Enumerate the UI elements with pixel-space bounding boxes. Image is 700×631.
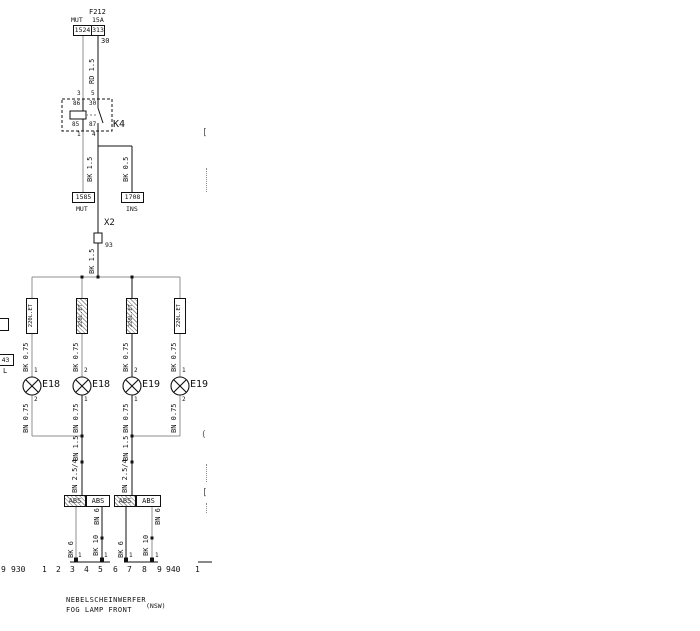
relay-pin-87: 87: [89, 122, 96, 128]
lamp3-pin-bottom: 1: [134, 397, 138, 403]
x2-connector-icon: [94, 233, 102, 243]
wire-label-bk6-right: BK 6: [118, 528, 125, 558]
inline-connector-3: 220L.ET: [126, 298, 138, 334]
track-cell-5: 4: [84, 566, 89, 574]
terminal-bars: [70, 558, 212, 562]
track-cell-6: 5: [98, 566, 103, 574]
inline-connector-1: 220L.ET: [26, 298, 38, 334]
edge-partial-text: L: [3, 368, 7, 375]
relay-id: K4: [113, 120, 125, 130]
lamp-icon-e19-right: [171, 377, 189, 395]
inline-connector-4: 220L.ET: [174, 298, 186, 334]
track-cell-4: 3: [70, 566, 75, 574]
lamp3-id: E19: [142, 380, 160, 390]
ground-pin-1d: 1: [155, 553, 159, 559]
relay-pin-ext-1: 1: [77, 132, 81, 138]
relay-pin-ext-3: 3: [77, 91, 81, 97]
edge-dotted-3: [206, 503, 208, 513]
wire-label-bn075-2: BN 0.75: [73, 403, 80, 433]
wire-label-bk15-x2: BK 1.5: [89, 246, 96, 274]
lamp-icon-e18-left: [23, 377, 41, 395]
edge-partial-box-2: 43: [0, 354, 14, 366]
conn-box-1708-label: INS: [126, 206, 138, 213]
abs-box-2: ABS: [86, 495, 110, 507]
relay-coil-icon: [70, 111, 86, 119]
track-cell-2: 1: [42, 566, 47, 574]
x2-id: X2: [104, 219, 115, 228]
wire-label-bn15-right: BN 1.5: [123, 439, 130, 461]
lamp2-pin-bottom: 1: [84, 397, 88, 403]
wiring-diagram-page: F212 MUT 15A 1524 313 30 RD 1.5 3 5 86 3…: [0, 0, 700, 631]
edge-paren: (: [201, 431, 206, 440]
relay-pin-86: 86: [73, 101, 80, 107]
fuse-pin-box-313: 313: [91, 25, 105, 36]
caption-tag: (NSW): [146, 603, 166, 610]
wiring-svg: [0, 0, 700, 631]
wire-label-bn6-left: BN 6: [94, 507, 101, 525]
track-cell-0: 9: [1, 566, 6, 574]
lamp1-pin-bottom: 2: [34, 397, 38, 403]
track-cell-1: 930: [11, 566, 25, 574]
wire-label-bn254-left: BN 2.5/4: [72, 465, 79, 493]
caption-german: NEBELSCHEINWERFER: [66, 597, 146, 604]
ground-pin-1b: 1: [104, 553, 108, 559]
fuse-name: F212: [89, 9, 106, 16]
relay-contact-icon: [98, 108, 103, 123]
lamp4-pin-top: 1: [182, 368, 186, 374]
edge-dotted-2: [206, 464, 208, 482]
fuse-conn-label: MUT: [71, 17, 83, 24]
track-cell-12: 1: [195, 566, 200, 574]
wire-label-bn075-3: BN 0.75: [123, 403, 130, 433]
wire-label-bk15-left: BK 1.5: [87, 148, 94, 182]
edge-dotted-1: [206, 168, 208, 192]
lamp-icon-e18-right: [73, 377, 91, 395]
wire-label-bk10-right: BK 10: [143, 532, 150, 556]
x2-pin: 93: [105, 242, 113, 249]
abs-box-1: ABS: [64, 495, 86, 507]
abs-box-3: ABS: [114, 495, 136, 507]
wire-label-bn6-right: BN 6: [155, 507, 162, 525]
relay-pin-85: 85: [72, 122, 79, 128]
wire-label-bk05: BK 0.5: [123, 148, 130, 182]
caption-english: FOG LAMP FRONT: [66, 607, 132, 614]
conn-box-1585: 1585: [72, 192, 95, 203]
edge-partial-box-1: [0, 318, 9, 331]
lamp4-pin-bottom: 2: [182, 397, 186, 403]
wire-label-bk10-left: BK 10: [93, 532, 100, 556]
ground-pin-1a: 1: [78, 553, 82, 559]
lamp1-pin-top: 1: [34, 368, 38, 374]
wire-label-bn15-left: BN 1.5: [73, 439, 80, 461]
lamp2-pin-top: 2: [84, 368, 88, 374]
track-cell-9: 8: [142, 566, 147, 574]
terminal-30-label: 30: [101, 38, 109, 45]
relay-pin-30: 30: [89, 101, 96, 107]
fuse-rating: 15A: [92, 17, 104, 24]
wire-label-bk075-1: BK 0.75: [23, 340, 30, 372]
conn-box-1708: 1708: [121, 192, 144, 203]
fuse-pin-box-1524: 1524: [73, 25, 92, 36]
wire-label-bk075-4: BK 0.75: [171, 340, 178, 372]
wire-label-bn075-1: BN 0.75: [23, 403, 30, 433]
lamp4-id: E19: [190, 380, 208, 390]
lamp1-id: E18: [42, 380, 60, 390]
lamp3-pin-top: 2: [134, 368, 138, 374]
ground-pin-1c: 1: [129, 553, 133, 559]
edge-bracket-1: [: [202, 129, 207, 138]
wire-label-rd15: RD 1.5: [89, 52, 96, 84]
conn-box-1585-label: MUT: [76, 206, 88, 213]
inline-connector-2: 220L.ET: [76, 298, 88, 334]
track-cell-10: 9: [157, 566, 162, 574]
wire-label-bk6-left: BK 6: [68, 528, 75, 558]
lamp2-id: E18: [92, 380, 110, 390]
wire-label-bn075-4: BN 0.75: [171, 403, 178, 433]
wire-label-bn254-right: BN 2.5/4: [122, 465, 129, 493]
track-cell-8: 7: [127, 566, 132, 574]
abs-box-4: ABS: [136, 495, 161, 507]
lamp-icon-e19-left: [123, 377, 141, 395]
relay-pin-ext-4: 4: [92, 132, 96, 138]
wire-label-bk075-2: BK 0.75: [73, 340, 80, 372]
edge-bracket-2: [: [202, 489, 207, 498]
track-cell-3: 2: [56, 566, 61, 574]
wires-reference: [32, 36, 180, 562]
relay-pin-ext-5: 5: [91, 91, 95, 97]
track-cell-7: 6: [113, 566, 118, 574]
relay-symbol: [62, 99, 112, 137]
wire-label-bk075-3: BK 0.75: [123, 340, 130, 372]
track-cell-11: 940: [166, 566, 180, 574]
